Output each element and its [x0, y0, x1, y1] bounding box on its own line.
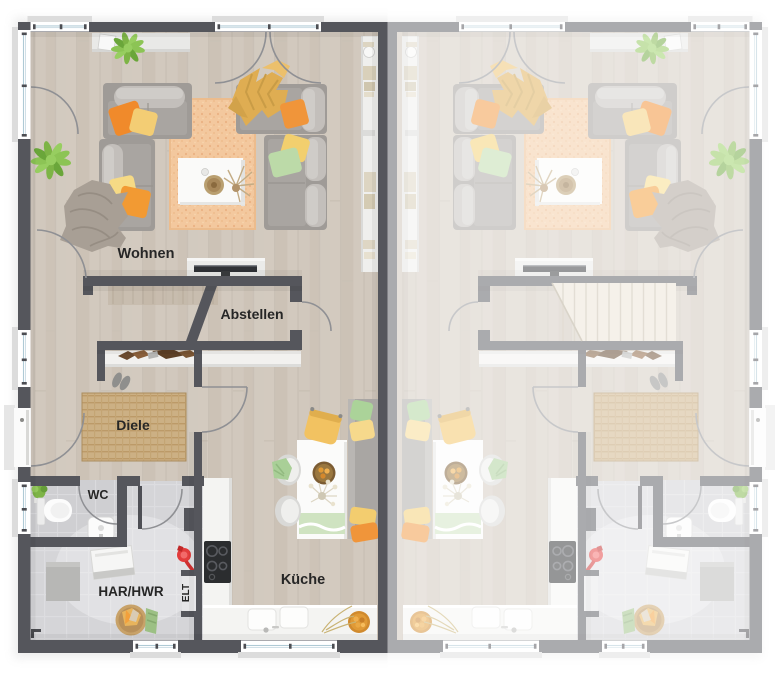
- svg-text:WC: WC: [88, 488, 109, 502]
- svg-text:Wohnen: Wohnen: [118, 246, 175, 262]
- svg-text:HAR/HWR: HAR/HWR: [98, 584, 163, 599]
- svg-text:Diele: Diele: [116, 417, 150, 433]
- svg-text:Abstellen: Abstellen: [220, 306, 283, 322]
- svg-text:Küche: Küche: [281, 572, 325, 588]
- svg-text:ELT: ELT: [181, 584, 192, 602]
